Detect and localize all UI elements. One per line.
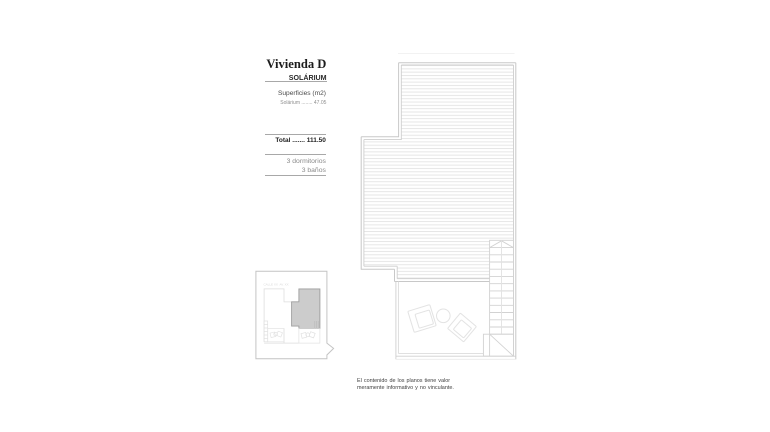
svg-text:CALLE XX AV. XX: CALLE XX AV. XX bbox=[264, 282, 289, 286]
